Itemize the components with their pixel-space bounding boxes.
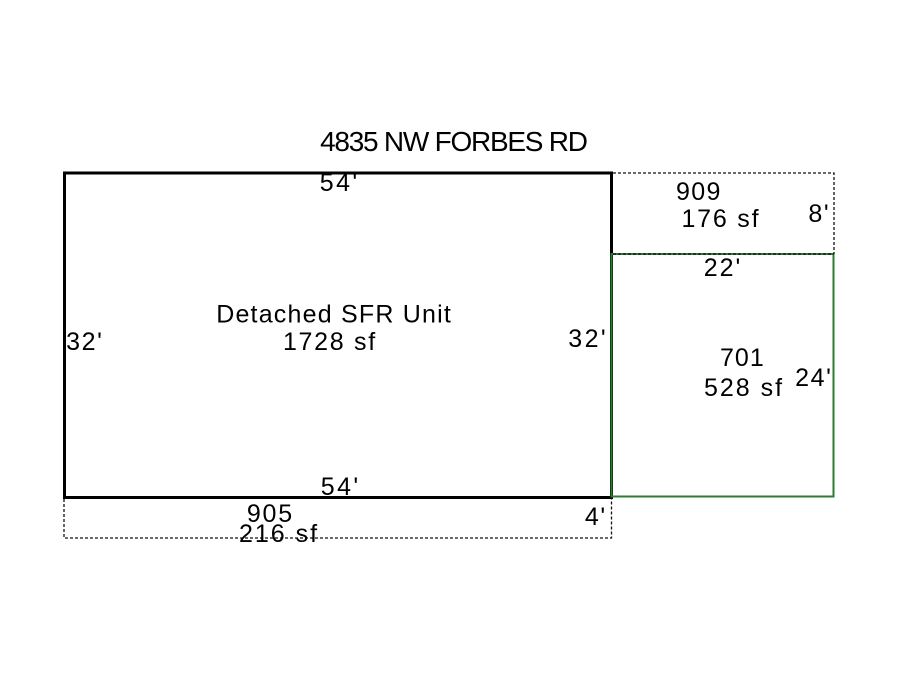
svg-text:701: 701 (720, 344, 765, 372)
svg-text:909: 909 (676, 178, 722, 206)
svg-text:54': 54' (321, 473, 361, 501)
svg-text:32': 32' (66, 328, 103, 356)
svg-text:4835 NW FORBES RD: 4835 NW FORBES RD (320, 126, 587, 157)
svg-text:24': 24' (795, 364, 832, 392)
svg-text:216 sf: 216 sf (239, 520, 319, 548)
svg-text:8': 8' (808, 200, 830, 228)
svg-text:Detached SFR Unit: Detached SFR Unit (216, 301, 452, 329)
svg-text:22': 22' (704, 254, 743, 282)
svg-text:54': 54' (320, 169, 360, 197)
svg-text:1728 sf: 1728 sf (283, 328, 377, 356)
svg-text:176 sf: 176 sf (681, 205, 760, 233)
svg-text:4': 4' (585, 503, 607, 531)
svg-text:528 sf: 528 sf (704, 374, 784, 402)
svg-text:32': 32' (568, 325, 608, 353)
